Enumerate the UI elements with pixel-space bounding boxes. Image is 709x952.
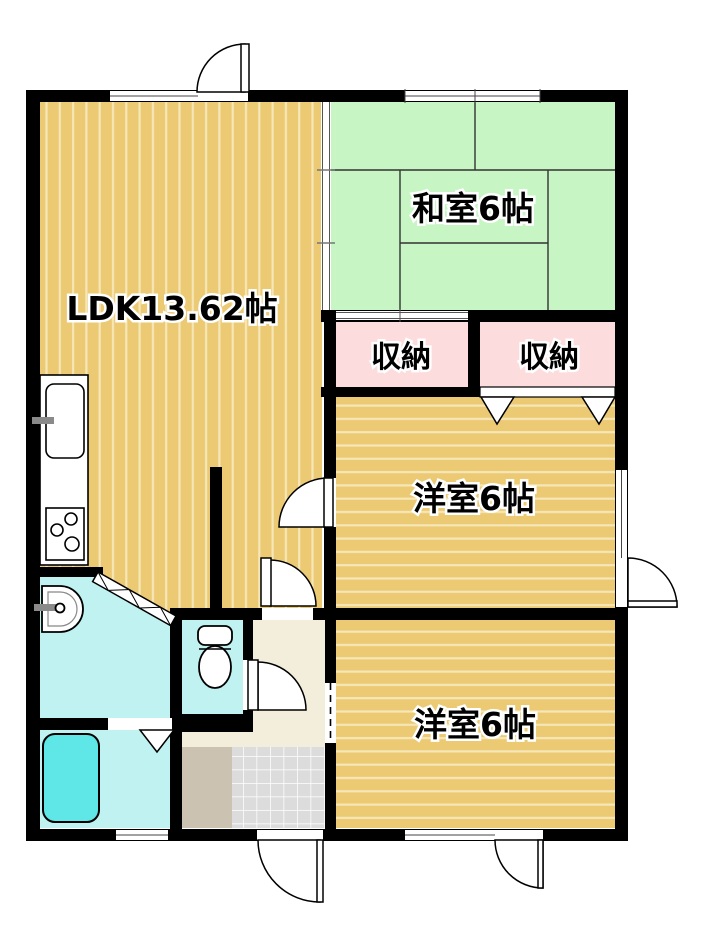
door-opening-right: [616, 558, 627, 607]
japanese-room-label: 和室6帖: [412, 189, 534, 228]
door-opening-entrance: [257, 830, 323, 840]
floor-plan-svg: LDK13.62帖 和室6帖 収納 収納 洋室6帖 洋室6帖: [0, 0, 709, 947]
hallway-floor-lower: [182, 732, 325, 747]
door-leaf-toilet: [248, 660, 258, 710]
western-room-bottom-label: 洋室6帖: [414, 705, 536, 744]
door-leaf-right: [628, 601, 677, 607]
stove-burner-1: [51, 524, 63, 536]
entrance-step: [182, 747, 232, 828]
washbasin: [34, 586, 83, 632]
door-opening-western-bottom: [495, 830, 543, 840]
front-door-leaf: [317, 840, 323, 902]
toilet-tank: [198, 626, 232, 645]
door-leaf-hallway: [261, 558, 271, 606]
ldk-label: LDK13.62帖: [66, 289, 277, 328]
kitchen: [32, 375, 88, 565]
bathtub: [43, 734, 99, 822]
floor-plan: LDK13.62帖 和室6帖 収納 収納 洋室6帖 洋室6帖: [0, 0, 709, 947]
stove-burner-2: [65, 513, 77, 525]
toilet-bowl: [199, 646, 231, 688]
entrance-tile-floor: [232, 747, 325, 828]
door-leaf-western-bottom: [538, 840, 543, 888]
western-room-middle-label: 洋室6帖: [413, 479, 535, 518]
door-leaf-ldk-top: [241, 44, 249, 92]
washbasin-faucet: [34, 604, 56, 611]
closet-left-label: 収納: [371, 340, 431, 375]
closet-right-label: 収納: [519, 340, 579, 375]
toilet: [198, 626, 232, 688]
kitchen-faucet: [32, 417, 54, 424]
washbasin-knob: [56, 604, 65, 613]
door-opening-hallway: [262, 608, 313, 620]
stove-burner-3: [65, 537, 79, 551]
door-leaf-western-middle: [324, 478, 333, 527]
hallway-opening-dashed: [325, 683, 336, 743]
